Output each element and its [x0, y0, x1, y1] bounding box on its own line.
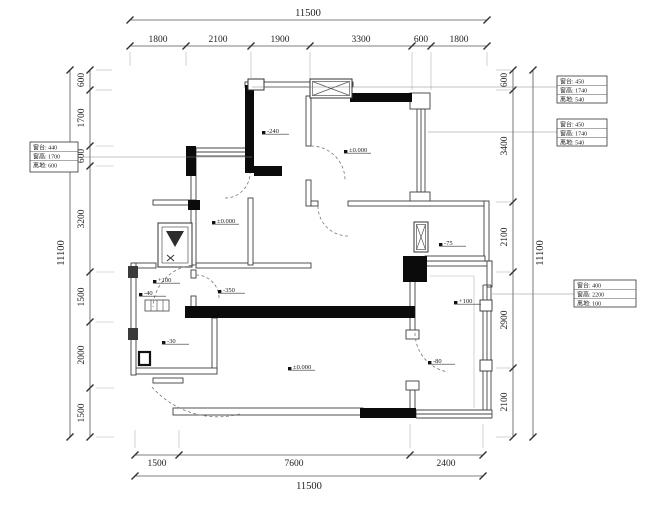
svg-text:窗台: 440: 窗台: 440 — [33, 143, 57, 151]
svg-text:±0.000: ±0.000 — [349, 147, 367, 154]
svg-text:2100: 2100 — [500, 392, 510, 411]
svg-text:2900: 2900 — [500, 310, 510, 329]
floor-plan: 1150018002100190033006001800150076002400… — [0, 0, 648, 505]
svg-text:600: 600 — [77, 73, 87, 88]
svg-text:窗高: 2200: 窗高: 2200 — [577, 290, 604, 298]
svg-text:-40: -40 — [144, 290, 153, 297]
svg-text:离地: 540: 离地: 540 — [560, 95, 584, 103]
svg-text:-240: -240 — [267, 128, 279, 135]
svg-text:离地: 600: 离地: 600 — [33, 161, 57, 169]
svg-text:600: 600 — [500, 73, 510, 88]
svg-text:11500: 11500 — [295, 8, 321, 19]
svg-text:窗高: 1740: 窗高: 1740 — [560, 86, 587, 94]
svg-text:窗台: 450: 窗台: 450 — [560, 77, 584, 85]
svg-text:1900: 1900 — [271, 35, 290, 45]
svg-text:窗高: 1700: 窗高: 1700 — [33, 152, 60, 160]
svg-text:+100: +100 — [158, 277, 171, 284]
svg-text:-30: -30 — [167, 338, 176, 345]
svg-text:1500: 1500 — [77, 287, 87, 306]
dimension-lines: 1150018002100190033006001800150076002400… — [56, 8, 546, 492]
duct-shaft — [158, 223, 192, 267]
window-annotation-boxes: 窗台: 440窗高: 1700离地: 600窗台: 450窗高: 1740离地:… — [30, 76, 636, 307]
svg-text:600: 600 — [77, 149, 87, 164]
svg-text:7600: 7600 — [285, 459, 304, 469]
svg-text:窗高: 1740: 窗高: 1740 — [560, 129, 587, 137]
svg-text:3300: 3300 — [352, 35, 371, 45]
svg-text:离地: 540: 离地: 540 — [560, 138, 584, 146]
svg-text:3200: 3200 — [77, 209, 87, 228]
svg-text:3400: 3400 — [500, 136, 510, 155]
svg-text:+100: +100 — [459, 298, 472, 305]
svg-text:1500: 1500 — [148, 459, 167, 469]
svg-text:-75: -75 — [444, 240, 453, 247]
svg-text:±0.000: ±0.000 — [293, 364, 311, 371]
svg-text:600: 600 — [414, 35, 429, 45]
svg-text:11100: 11100 — [535, 240, 546, 265]
floor-plan-drawing: 1150018002100190033006001800150076002400… — [0, 0, 648, 505]
svg-text:11500: 11500 — [296, 481, 322, 492]
svg-text:2100: 2100 — [500, 227, 510, 246]
svg-text:±0.000: ±0.000 — [217, 218, 235, 225]
svg-text:2400: 2400 — [437, 459, 456, 469]
svg-text:离地: 100: 离地: 100 — [577, 299, 601, 307]
svg-text:-80: -80 — [433, 358, 442, 365]
svg-text:-350: -350 — [223, 287, 235, 294]
svg-text:2000: 2000 — [77, 345, 87, 364]
svg-text:1700: 1700 — [77, 108, 87, 127]
svg-text:1800: 1800 — [450, 35, 469, 45]
svg-text:1500: 1500 — [77, 403, 87, 422]
svg-text:2100: 2100 — [209, 35, 228, 45]
svg-text:1800: 1800 — [149, 35, 168, 45]
svg-text:11100: 11100 — [56, 240, 67, 265]
svg-text:窗台: 400: 窗台: 400 — [577, 281, 601, 289]
svg-text:窗台: 450: 窗台: 450 — [560, 120, 584, 128]
